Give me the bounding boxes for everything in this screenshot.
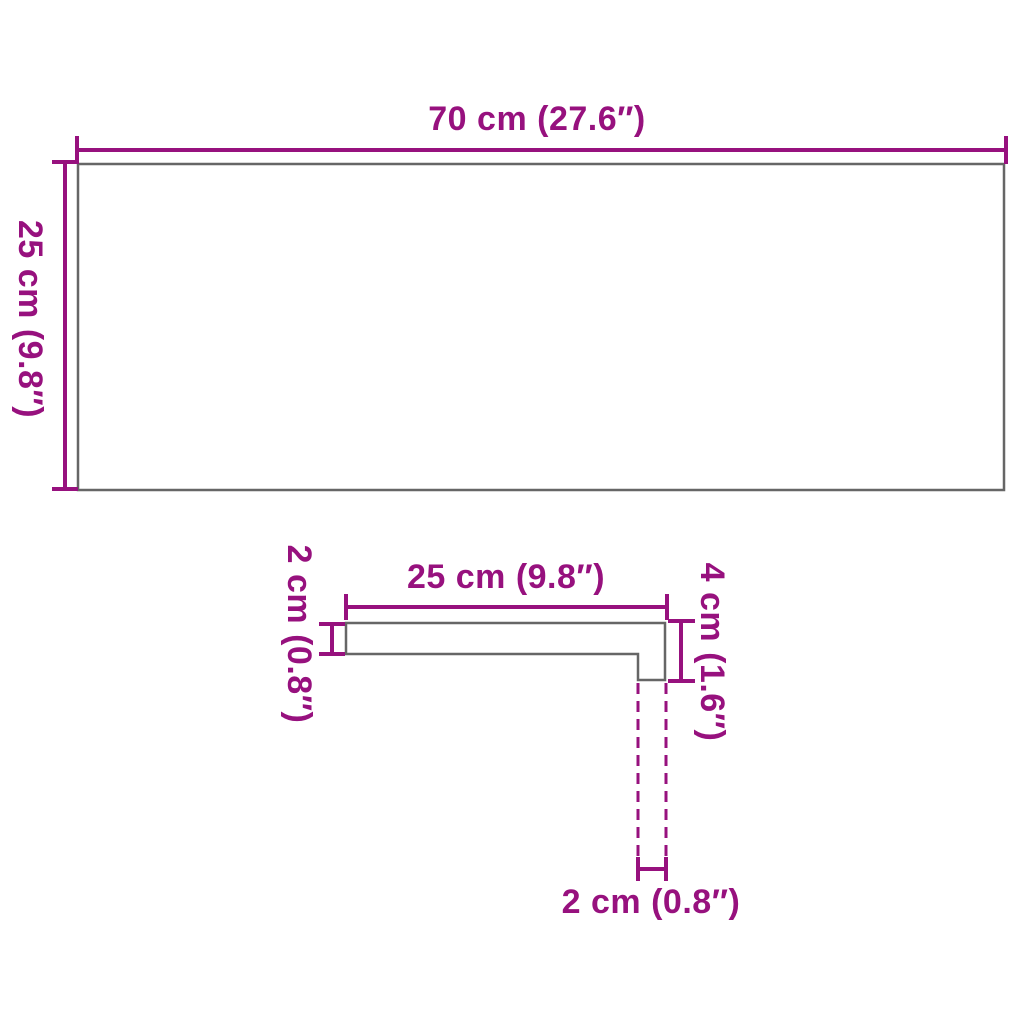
profile-edge-thickness-dimension-label: 2 cm (0.8″) bbox=[451, 881, 851, 923]
shape-outlines bbox=[78, 164, 1004, 680]
top-height-dimension-label: 25 cm (9.8″) bbox=[9, 119, 51, 519]
diagram-drawing bbox=[0, 0, 1024, 1024]
profile-edge-height-dimension-label: 4 cm (1.6″) bbox=[691, 452, 733, 852]
profile-width-dimension-label: 25 cm (9.8″) bbox=[306, 556, 706, 598]
top-width-dimension-label: 70 cm (27.6″) bbox=[337, 98, 737, 140]
product-dimension-diagram: 70 cm (27.6″) 25 cm (9.8″) 25 cm (9.8″) … bbox=[0, 0, 1024, 1024]
side-profile-outline bbox=[346, 623, 665, 680]
top-view-panel-outline bbox=[78, 164, 1004, 490]
profile-thickness-dimension-label: 2 cm (0.8″) bbox=[278, 434, 320, 834]
